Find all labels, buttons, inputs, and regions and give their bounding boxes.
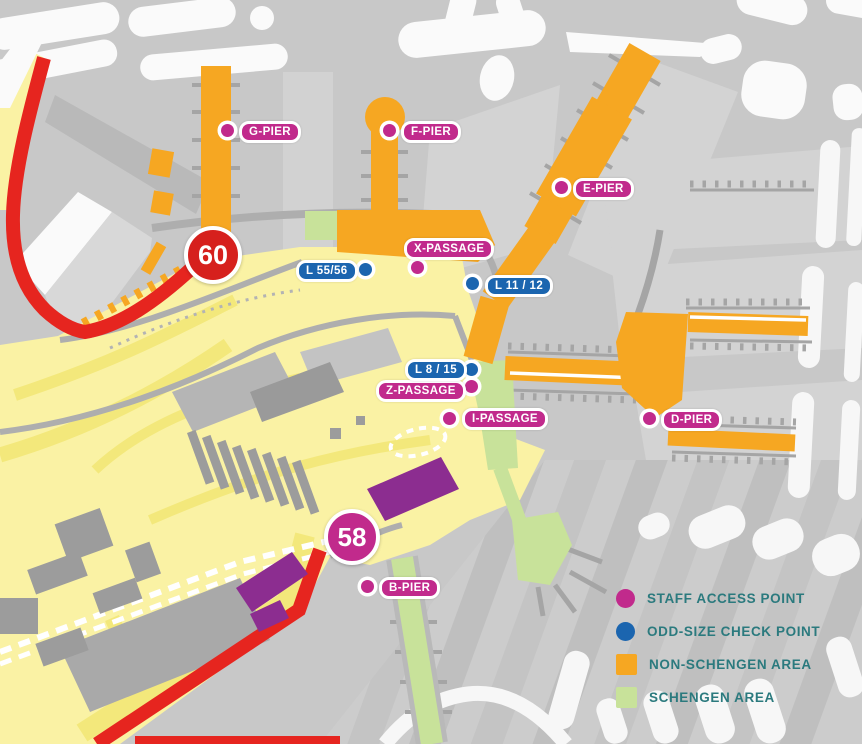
legend-item-staff-access: STAFF ACCESS POINT	[616, 582, 862, 615]
e-pier-label: E-PIER	[573, 178, 634, 200]
staff-access-point-marker-f	[383, 124, 396, 137]
b-pier-label: B-PIER	[379, 577, 440, 599]
f-pier-label: F-PIER	[401, 121, 461, 143]
hall-60-marker: 60	[184, 226, 242, 284]
staff-access-point-marker-e	[555, 181, 568, 194]
hall-58-marker: 58	[324, 509, 380, 565]
legend-label: STAFF ACCESS POINT	[647, 591, 805, 606]
staff-access-point-icon	[616, 589, 635, 608]
d-pier-label: D-PIER	[661, 409, 722, 431]
schengen-area-icon	[616, 687, 637, 708]
gate-l815-label: L 8 / 15	[405, 359, 467, 381]
staff-access-point-marker-b	[361, 580, 374, 593]
legend-item-non-schengen: NON-SCHENGEN AREA	[616, 648, 862, 681]
legend-item-odd-size: ODD-SIZE CHECK POINT	[616, 615, 862, 648]
g-pier-label: G-PIER	[239, 121, 301, 143]
gate-l1112-label: L 11 / 12	[485, 275, 553, 297]
z-passage-label: Z-PASSAGE	[376, 380, 466, 402]
legend-label: ODD-SIZE CHECK POINT	[647, 624, 820, 639]
odd-size-check-point-icon	[616, 622, 635, 641]
x-passage-label: X-PASSAGE	[404, 238, 494, 260]
gate-l5556-label: L 55/56	[296, 260, 358, 282]
odd-size-check-marker-l5556	[359, 263, 372, 276]
staff-access-point-marker-x	[411, 261, 424, 274]
staff-access-point-marker-i	[443, 412, 456, 425]
staff-access-point-marker-z	[465, 380, 478, 393]
legend-item-schengen: SCHENGEN AREA	[616, 681, 862, 714]
staff-access-point-marker-d	[643, 412, 656, 425]
legend-label: SCHENGEN AREA	[649, 690, 775, 705]
i-passage-label: I-PASSAGE	[462, 408, 548, 430]
non-schengen-area-icon	[616, 654, 637, 675]
legend-label: NON-SCHENGEN AREA	[649, 657, 812, 672]
staff-access-point-marker-g	[221, 124, 234, 137]
map-legend: STAFF ACCESS POINT ODD-SIZE CHECK POINT …	[616, 582, 862, 714]
odd-size-check-marker-l1112	[466, 277, 479, 290]
airport-terminal-map: G-PIER F-PIER E-PIER D-PIER B-PIER X-PAS…	[0, 0, 862, 744]
